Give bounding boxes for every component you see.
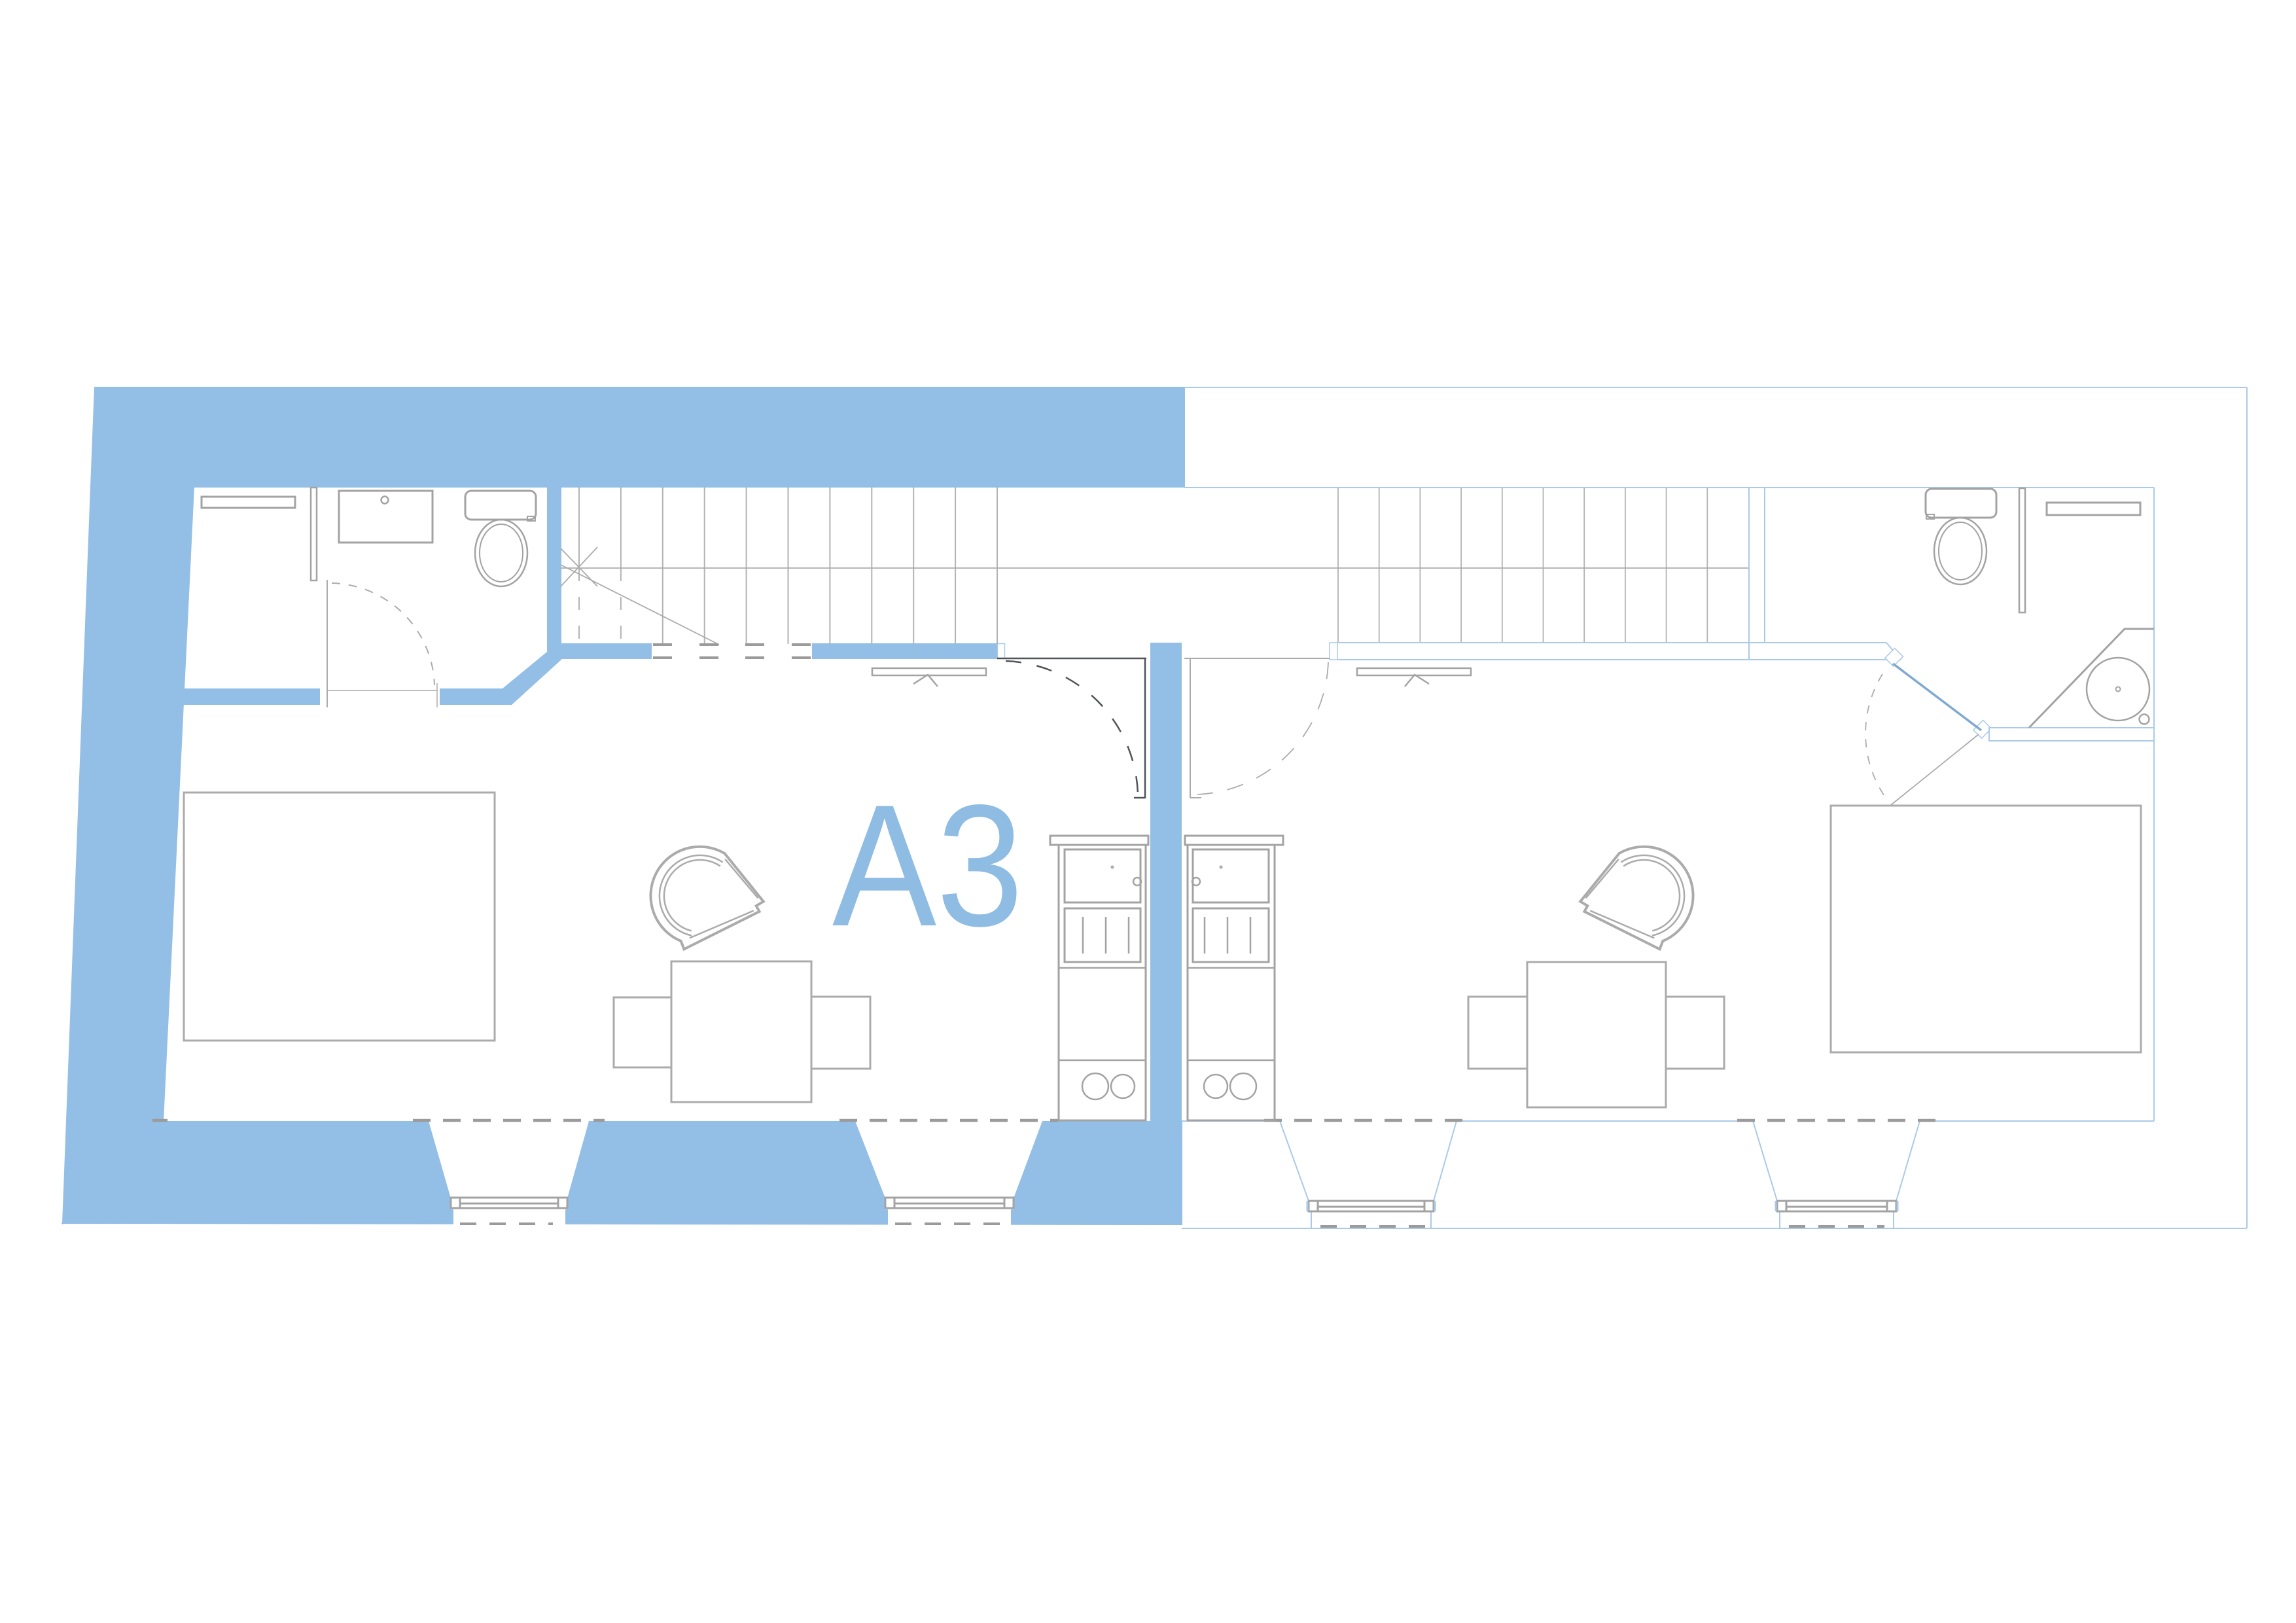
svg-text:A3: A3 [832, 769, 1023, 963]
